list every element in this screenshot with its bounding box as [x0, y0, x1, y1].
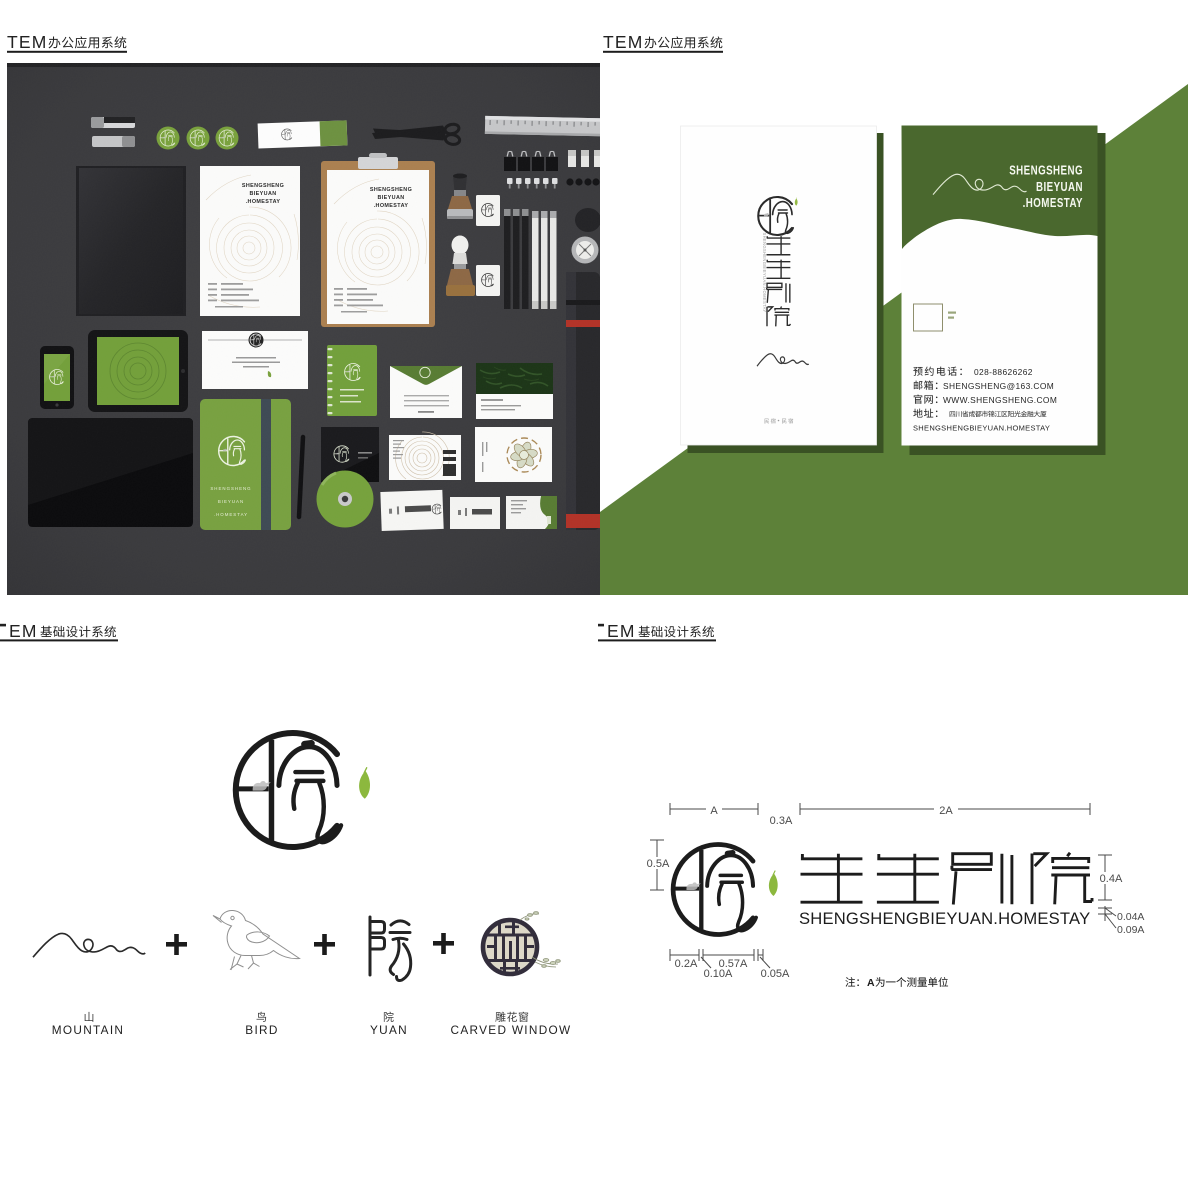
svg-text:2A: 2A — [939, 805, 953, 817]
svg-text:A: A — [867, 977, 875, 989]
svg-text:0.5A: 0.5A — [647, 858, 670, 870]
svg-text:SHENGSHENG@163.COM: SHENGSHENG@163.COM — [943, 381, 1054, 391]
svg-text:SHENGSHENG: SHENGSHENG — [1009, 164, 1083, 178]
svg-text:0.4A: 0.4A — [1100, 873, 1123, 885]
svg-text:0.05A: 0.05A — [761, 968, 790, 980]
svg-text:EM: EM — [607, 621, 636, 641]
svg-text:TEM: TEM — [7, 32, 48, 52]
svg-text:CARVED WINDOW: CARVED WINDOW — [451, 1023, 572, 1037]
svg-text:0.3A: 0.3A — [770, 815, 793, 827]
svg-text:MOUNTAIN: MOUNTAIN — [52, 1023, 124, 1037]
svg-text:0.2A: 0.2A — [675, 958, 698, 970]
svg-text:0.04A: 0.04A — [1117, 911, 1144, 923]
svg-text:BIRD: BIRD — [245, 1023, 278, 1037]
svg-text:A: A — [710, 805, 718, 817]
svg-text:SHENGSHENGBIEYUAN.HOMESTAY: SHENGSHENGBIEYUAN.HOMESTAY — [913, 424, 1050, 433]
svg-text:SHENGSHENGBIEYUAN.HOMESTAY: SHENGSHENGBIEYUAN.HOMESTAY — [799, 909, 1090, 928]
svg-text:SHENGSHENGBIEYUAN.HOMESTAY: SHENGSHENGBIEYUAN.HOMESTAY — [762, 233, 767, 313]
svg-text:YUAN: YUAN — [370, 1023, 408, 1037]
svg-text:.HOMESTAY: .HOMESTAY — [1023, 197, 1083, 211]
svg-text:BIEYUAN: BIEYUAN — [1036, 181, 1083, 195]
svg-text:WWW.SHENGSHENG.COM: WWW.SHENGSHENG.COM — [943, 395, 1057, 405]
svg-text:EM: EM — [9, 621, 38, 641]
svg-text:TEM: TEM — [603, 32, 644, 52]
svg-text:0.09A: 0.09A — [1117, 924, 1144, 936]
svg-text:0.10A: 0.10A — [704, 968, 733, 980]
svg-text:028-88626262: 028-88626262 — [974, 367, 1033, 377]
